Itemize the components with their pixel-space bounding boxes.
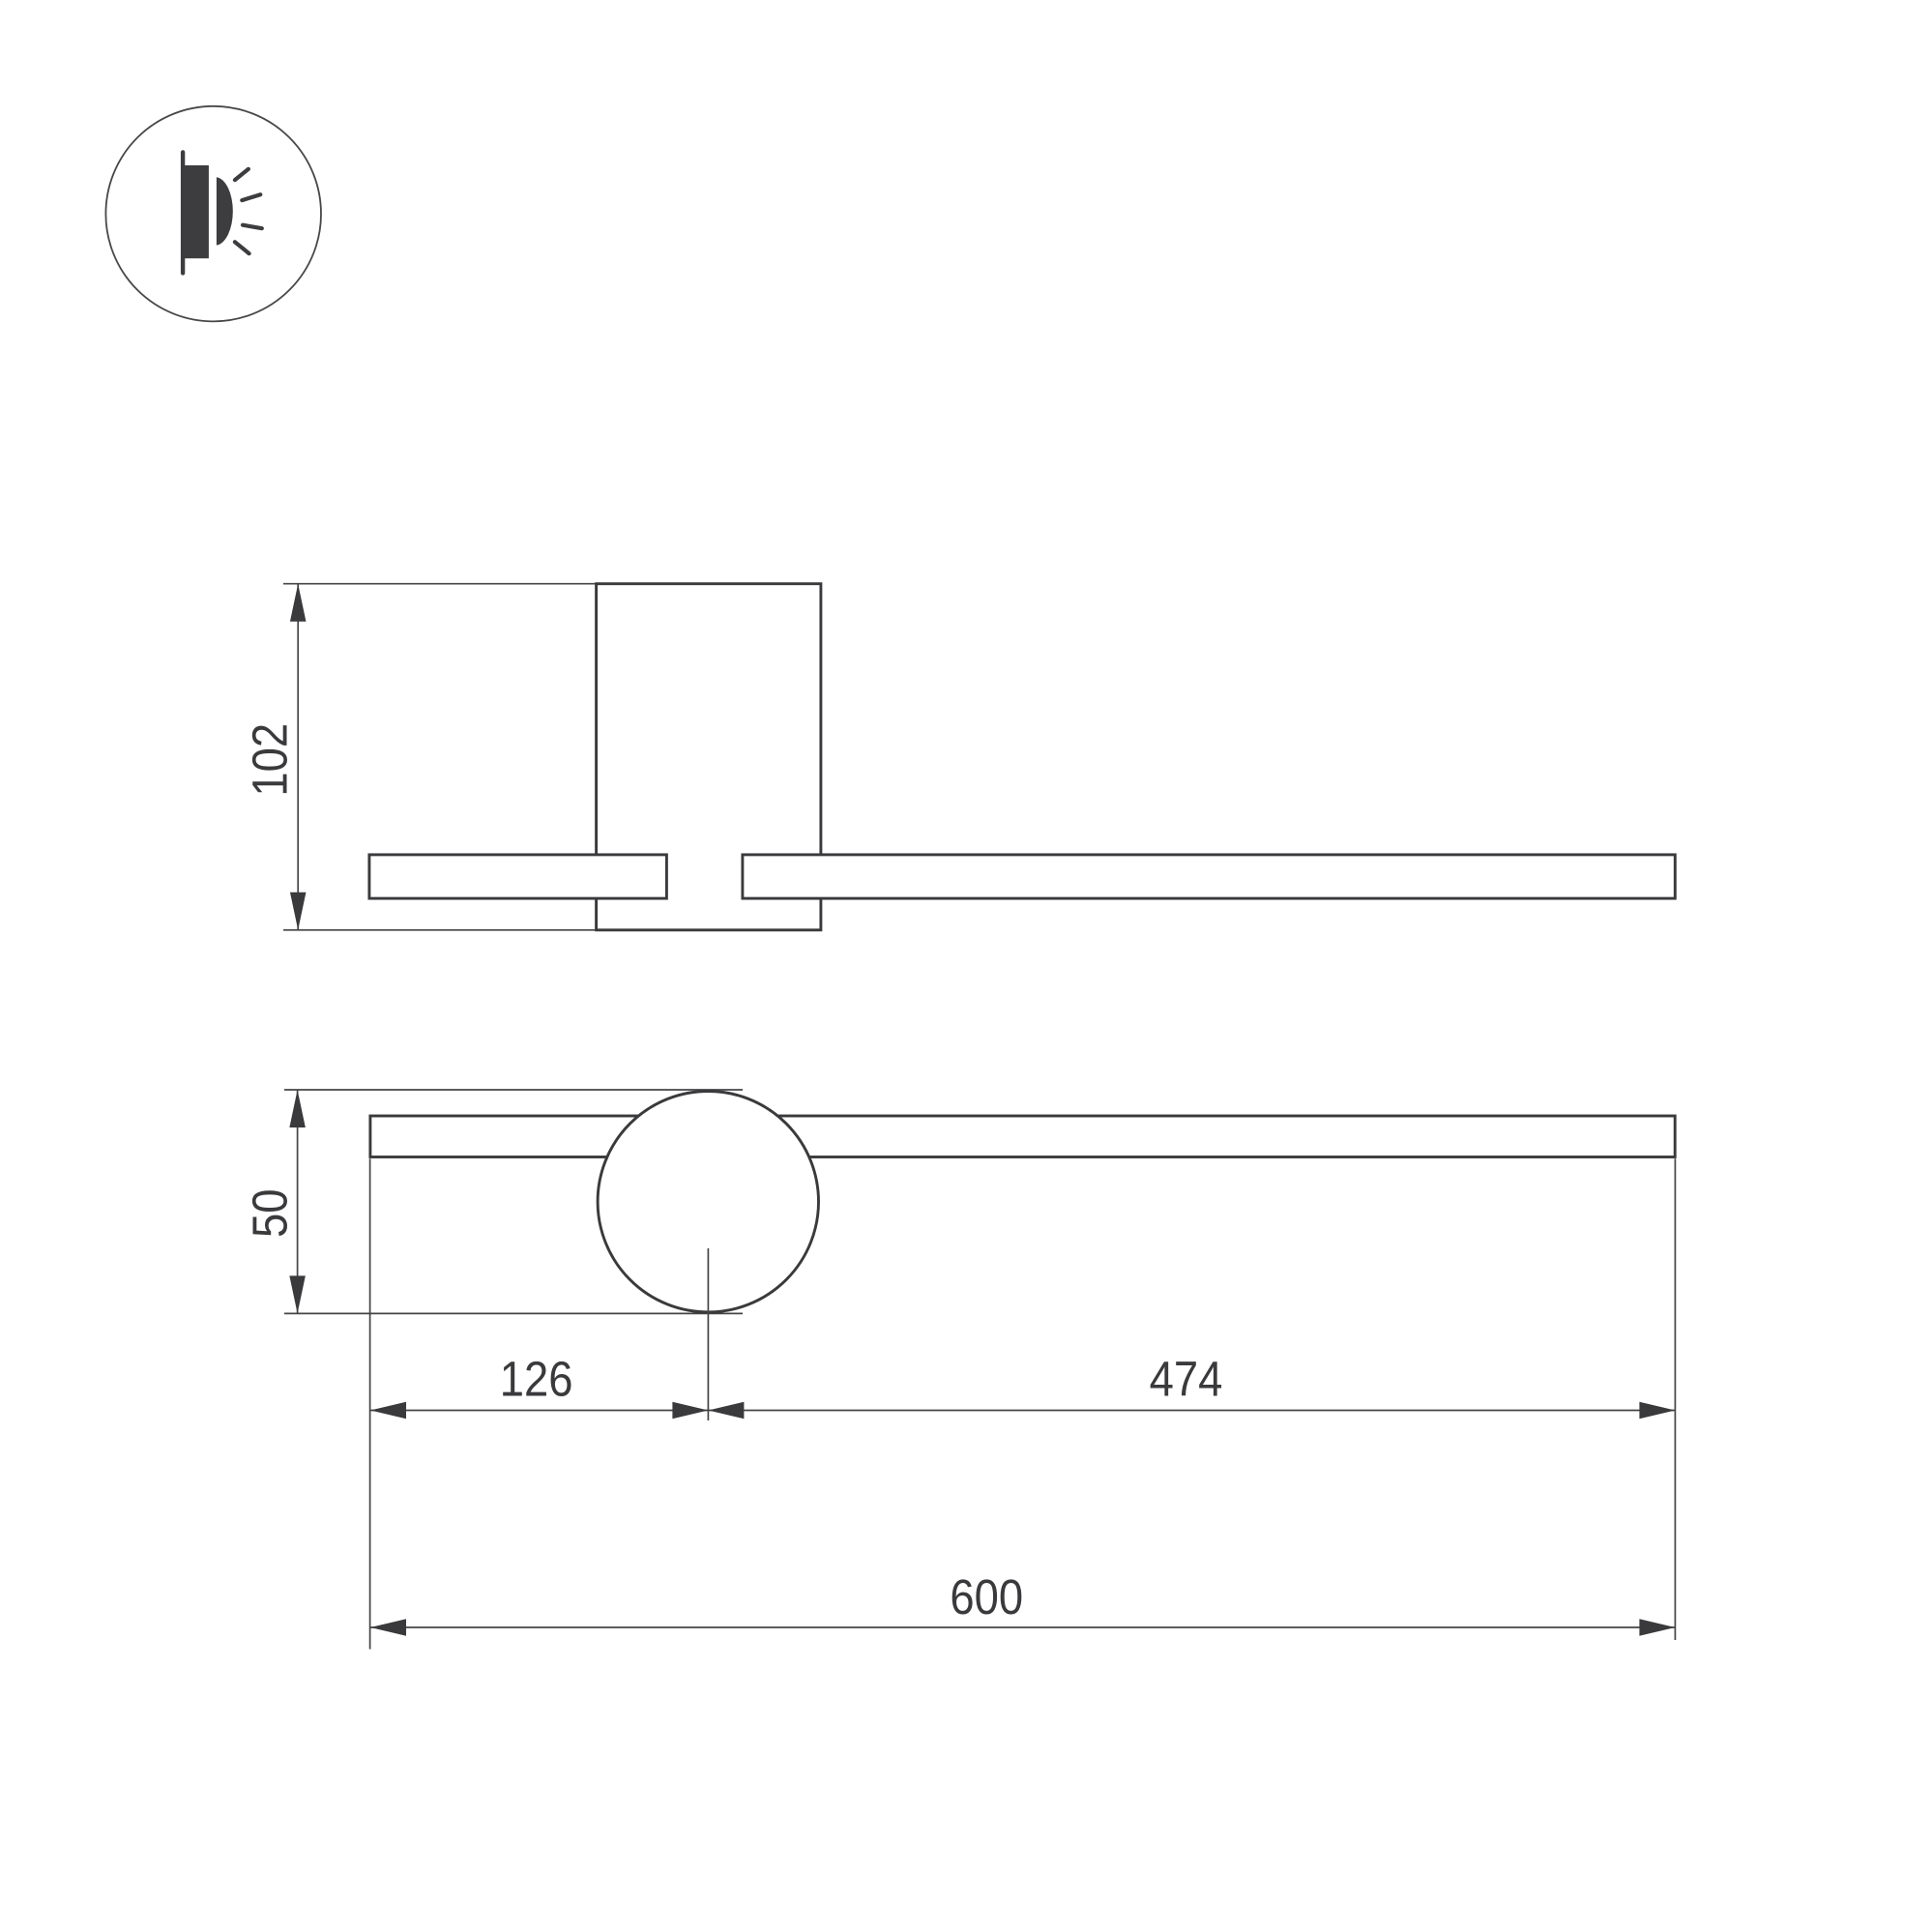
svg-text:102: 102 <box>243 723 298 797</box>
svg-text:600: 600 <box>950 1570 1023 1625</box>
svg-text:50: 50 <box>243 1188 298 1237</box>
svg-text:474: 474 <box>1150 1352 1223 1407</box>
svg-text:126: 126 <box>500 1352 573 1407</box>
